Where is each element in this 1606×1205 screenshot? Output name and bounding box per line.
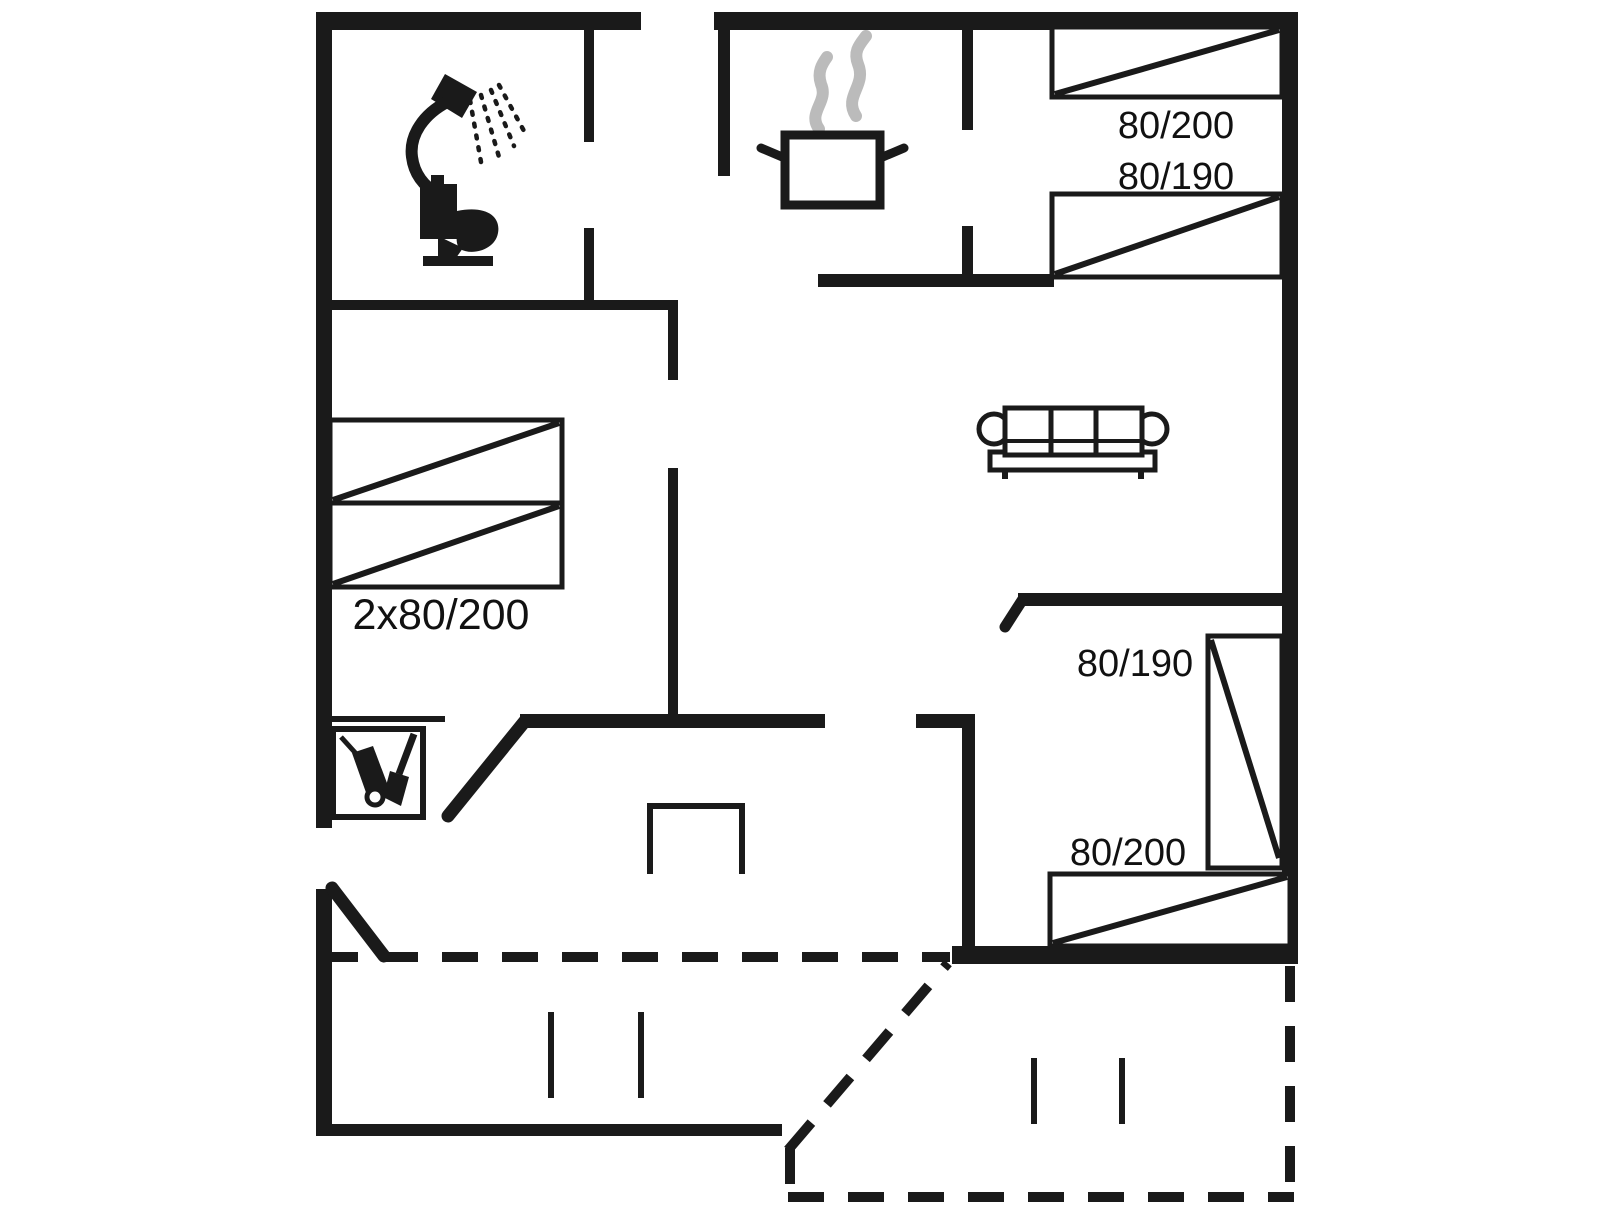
label-bed-bottom-right-bottom: 80/200 (1070, 832, 1186, 874)
bed-top-right-upper (1052, 27, 1282, 97)
cooking-pot-icon (761, 135, 904, 205)
floor-plan: 80/200 80/190 2x80/200 80/190 80/200 (0, 0, 1606, 1205)
bed-top-right-lower (1052, 194, 1282, 277)
shower-icon (412, 74, 524, 195)
label-bed-top-right-lower: 80/190 (1118, 156, 1234, 198)
bed-bottom-right-vertical (1208, 636, 1282, 868)
sofa-icon (979, 408, 1167, 479)
toilet-icon (420, 175, 498, 266)
terrace-boundaries (316, 957, 1294, 1205)
label-bed-left-double: 2x80/200 (353, 591, 530, 639)
label-bed-top-right-upper: 80/200 (1118, 105, 1234, 147)
floor-plan-drawing: 80/200 80/190 2x80/200 80/190 80/200 (0, 0, 1606, 1205)
label-bed-bottom-right-side: 80/190 (1077, 643, 1193, 685)
bed-bottom-right-horizontal (1050, 874, 1290, 946)
steam-icon (815, 36, 866, 129)
cleaning-closet-icon (333, 729, 423, 817)
bed-double-left (330, 420, 562, 587)
fireplace-icon (650, 806, 742, 874)
